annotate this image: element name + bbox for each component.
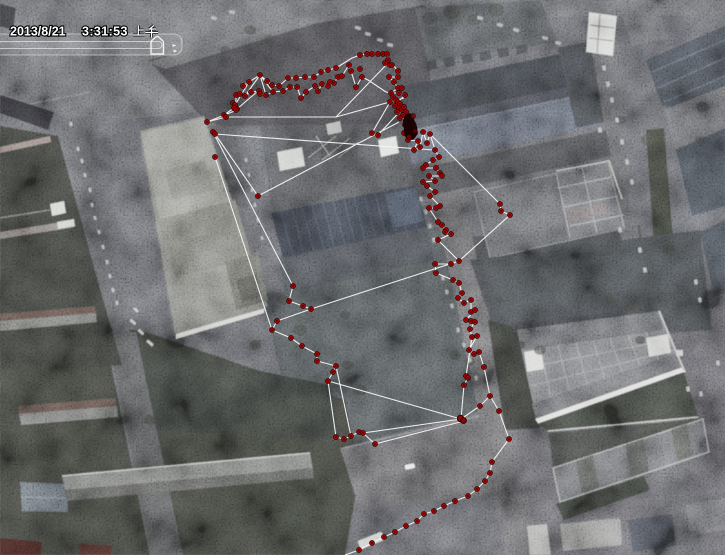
svg-text:3:31:53: 3:31:53 [82, 25, 128, 39]
svg-text:2013/8/21: 2013/8/21 [10, 25, 66, 39]
